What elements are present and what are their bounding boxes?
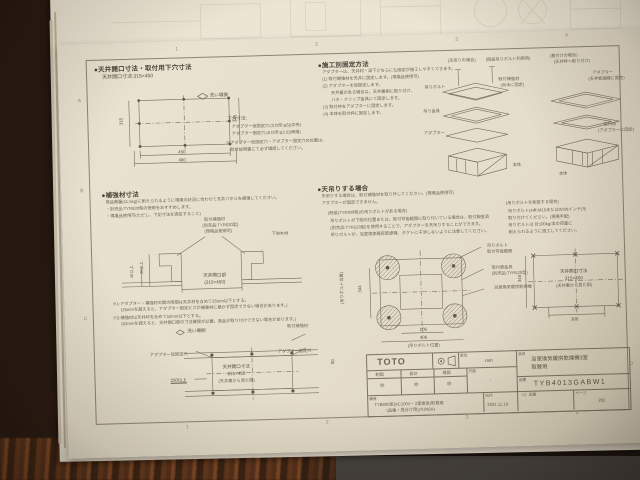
remarks-cell: 備考 TYB800型(AC100V・3室換気)取替用 (品番・見分け用)(7UN… [368,393,484,415]
unit-cell: 単位 mm [459,351,517,369]
wash-side-arrow-icon [197,93,209,100]
scale-cell: 尺度 - [467,367,518,393]
col-header: 設計 [409,371,418,377]
iso-label: 吊りボルト [424,84,445,91]
notes-title: 下穴寸法: [227,116,247,123]
page-value: 2/3 [598,398,605,405]
cross-section-drawing [119,234,305,301]
grid-ref: 3 [466,415,469,421]
title-block: TOTO 単位 mm 制図 設計 検図 ㊞ ㊞ ㊞ [366,347,632,417]
code-label: 品番 [519,378,527,383]
date-value: 2021.11.19 [487,401,508,407]
dim-label: 345 [517,275,522,282]
grid-ref: B [80,188,84,194]
dim-label: 315 [118,118,123,125]
grid-ref: 1 [186,424,189,430]
scale-label: 尺度 [468,369,476,374]
date-label: 日付 [485,394,493,399]
dim-label: 50 [330,359,335,364]
iso-label: 本体 [513,162,522,168]
grid-ref: C [84,316,88,322]
col-header: 制図 [375,372,384,378]
product-name: 浴室換気暖房乾燥機3室 [531,355,588,364]
dim-label: 450 [178,149,185,154]
remarks-line: (品番・見分け用)(7UN6A) [386,406,435,413]
stamp-mark: ㊞ [447,381,452,388]
dim-label: 40以上 [129,265,135,278]
unit-label: 単位 [460,354,468,359]
bolt-label: 取付可能範囲 [487,248,512,255]
section-subheading: 天井開口寸法:315×450 [102,72,153,80]
logo-cell: TOTO [367,353,433,371]
dim-label: 406 [405,334,441,340]
stamp-cell: ㊞ [435,377,468,395]
dim-label: 480 [178,157,185,162]
projection-symbol-cell [433,353,459,370]
product-name: 取替用 [531,364,547,372]
stamp-mark: ㊞ [414,382,419,389]
date-cell: 日付 2021.11.19 [484,392,519,412]
table-edge-shadow [336,456,640,480]
stamp-mark: ㊞ [380,383,385,390]
iso-label: 吊り金具 [423,108,440,114]
opening-size: (315×450) [192,279,238,287]
wash-side-label: 洗い場側 [210,92,229,99]
stamp-cell: ㊞ [402,377,435,395]
stamp-cell: ㊞ [368,378,402,396]
scale-value: - [490,378,492,385]
grid-ref: 4 [565,33,568,39]
dim-note: (吊りボルト位置) [339,272,346,304]
iso-label: アダプター [424,130,445,137]
dim-label: 25以上 [139,261,145,274]
iso-label: (天井板廻縁に固定) [588,75,624,82]
dim-label: 250以上 [171,377,187,383]
grid-ref: 2 [326,419,329,425]
grid-ref: A [78,98,82,104]
product-code: TYB4013GABW1 [534,379,607,388]
reinf-label-sub: (現場品使用可) [204,228,232,235]
reinf-label: 取付補強材 [287,323,308,330]
page-number-cell: ページ 2/3 [574,389,631,410]
grid-ref: 1 [175,46,178,52]
iso-label: 本体 [559,171,568,177]
name-label: 品名 [518,352,526,357]
figure-number-cell: 〈1〉図番 [518,391,575,412]
iso-label: (アダプターに固定) [598,127,634,134]
page-label: ページ [575,391,586,396]
grid-ref: 3 [455,37,458,43]
grid-ref: 2 [315,42,318,48]
col-header: 検図 [442,370,451,376]
dim-label: 344 [357,285,362,292]
toto-logo: TOTO [377,356,406,367]
drawing-page: 1 2 3 4 1 2 3 4 A B C D ●天井開口寸法・取付用下穴寸法 … [57,28,640,459]
iso-label: (吊木に固定) [500,82,524,89]
dim-label: 206 [405,326,441,332]
product-name-cell: 品名 浴室換気暖房乾燥機3室 取替用 [517,348,630,377]
unit-value: mm [485,358,493,365]
dim-label: 306 [571,316,578,321]
figure-label: 〈1〉図番 [519,393,536,398]
third-angle-projection-icon [433,353,459,370]
